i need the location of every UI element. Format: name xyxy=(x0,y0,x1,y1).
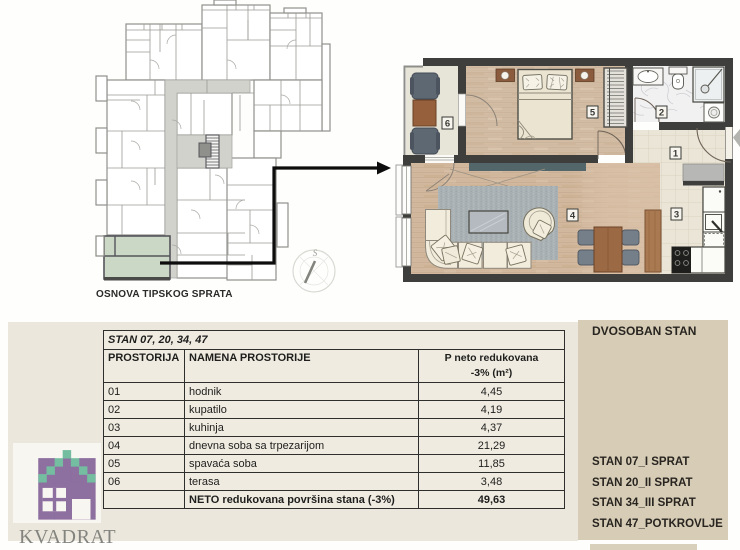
svg-text:1: 1 xyxy=(673,149,679,160)
svg-text:5: 5 xyxy=(590,108,596,119)
svg-text:4: 4 xyxy=(570,211,576,222)
svg-text:2: 2 xyxy=(659,108,664,119)
svg-text:S: S xyxy=(313,248,318,258)
svg-text:6: 6 xyxy=(445,119,450,130)
svg-text:3: 3 xyxy=(674,210,679,221)
